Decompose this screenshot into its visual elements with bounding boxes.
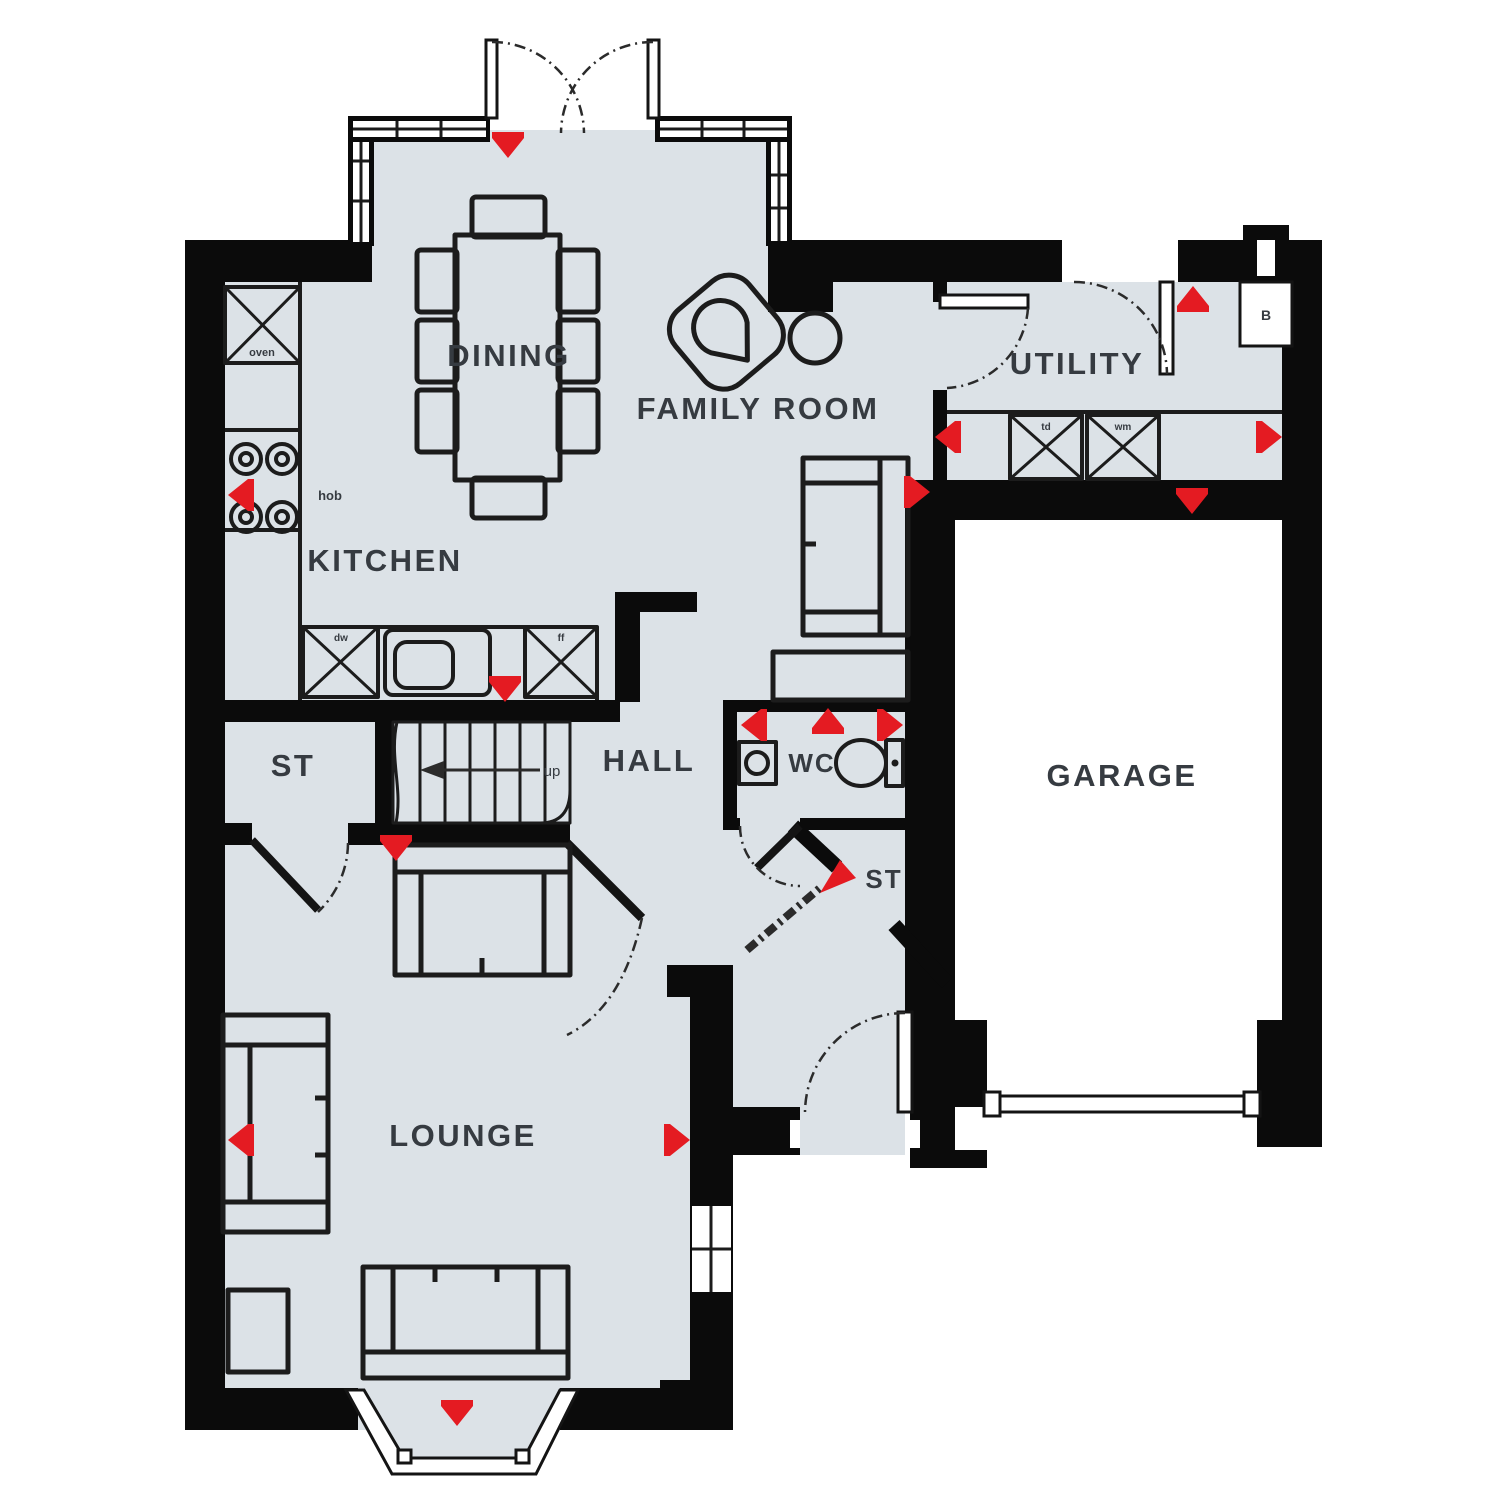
utility-floor <box>933 282 1282 480</box>
dishwasher-label: dw <box>334 633 348 644</box>
family-room-label: FAMILY ROOM <box>637 391 880 426</box>
dining-label: DINING <box>447 338 571 373</box>
utility-label: UTILITY <box>1010 346 1145 381</box>
porch-outside <box>733 1155 905 1430</box>
garage-door <box>984 1092 1260 1116</box>
fridge-freezer-label: ff <box>558 633 565 644</box>
lounge-label: LOUNGE <box>389 1118 537 1153</box>
kitchen-label: KITCHEN <box>307 543 462 578</box>
flue-slot <box>1257 240 1275 276</box>
hob-label: hob <box>318 488 342 503</box>
boiler-label: B <box>1261 307 1271 323</box>
dining-bay-floor <box>360 130 780 245</box>
boiler-cupboard: B <box>1240 282 1292 346</box>
floor-plan-page: B <box>0 0 1500 1500</box>
store-1-label: ST <box>271 748 316 783</box>
stairs-up-label: up <box>544 763 561 780</box>
window-bay-right <box>766 137 792 246</box>
garage-label: GARAGE <box>1046 758 1197 793</box>
french-doors <box>486 40 659 133</box>
hall-label: HALL <box>603 743 696 778</box>
wc-label: WC <box>788 748 835 778</box>
window-bay-top-left <box>348 116 490 142</box>
window-porch-side <box>692 1206 731 1292</box>
oven-label: oven <box>249 347 275 359</box>
tumble-dryer-label: td <box>1041 422 1050 433</box>
store-2-label: ST <box>865 864 902 894</box>
floor-plan: B <box>0 0 1500 1500</box>
washing-machine-label: wm <box>1114 422 1132 433</box>
